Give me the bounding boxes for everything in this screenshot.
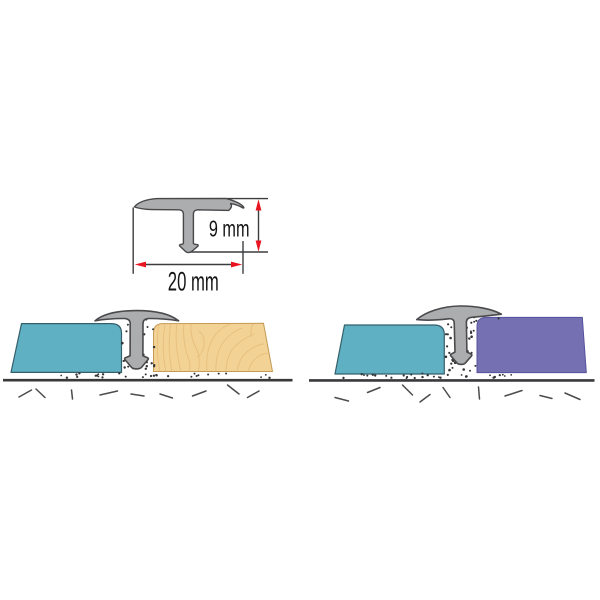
- svg-text:9 mm: 9 mm: [209, 215, 250, 241]
- svg-text:20 mm: 20 mm: [168, 266, 219, 296]
